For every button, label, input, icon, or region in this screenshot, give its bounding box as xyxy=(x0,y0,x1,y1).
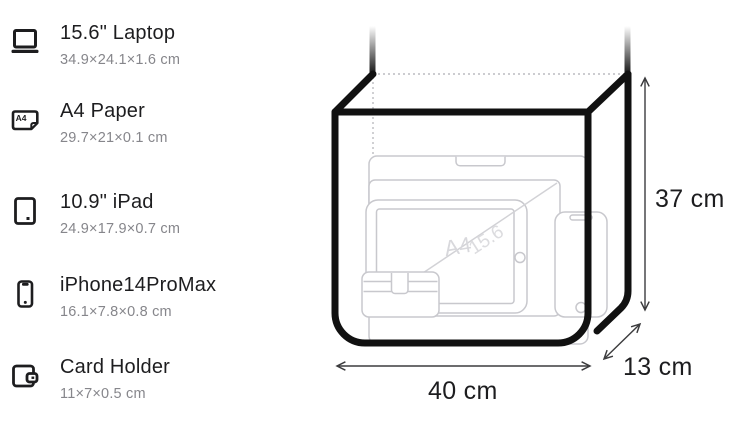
ghost-laptop xyxy=(369,156,588,344)
dimension-arrows xyxy=(337,78,645,366)
ipad-icon xyxy=(10,196,40,226)
ghost-iphone xyxy=(555,212,607,317)
ghost-contents: 15.6 A4 xyxy=(362,156,607,344)
ghost-perspective-line xyxy=(411,183,557,281)
ghost-ipad xyxy=(366,200,527,313)
item-title: Card Holder xyxy=(60,356,170,378)
item-dimensions: 29.7×21×0.1 cm xyxy=(60,130,168,146)
item-row-a4-paper: A4 A4 Paper 29.7×21×0.1 cm xyxy=(10,100,168,146)
item-dimensions: 16.1×7.8×0.8 cm xyxy=(60,304,216,320)
width-dimension-label: 40 cm xyxy=(428,377,498,406)
item-dimensions: 24.9×17.9×0.7 cm xyxy=(60,221,180,237)
ghost-a4-paper xyxy=(369,180,560,316)
item-dimensions: 11×7×0.5 cm xyxy=(60,386,170,402)
item-title: A4 Paper xyxy=(60,100,168,122)
height-dimension-label: 37 cm xyxy=(655,185,725,214)
depth-dimension-label: 13 cm xyxy=(623,353,693,382)
card-holder-icon xyxy=(10,361,40,391)
item-row-card-holder: Card Holder 11×7×0.5 cm xyxy=(10,356,170,402)
item-row-laptop: 15.6" Laptop 34.9×24.1×1.6 cm xyxy=(10,22,180,68)
hidden-edges-dotted xyxy=(373,74,627,156)
item-title: iPhone14ProMax xyxy=(60,274,216,296)
laptop-icon xyxy=(10,27,40,57)
item-row-iphone: iPhone14ProMax 16.1×7.8×0.8 cm xyxy=(10,274,216,320)
item-title: 10.9" iPad xyxy=(60,191,180,213)
item-dimensions: 34.9×24.1×1.6 cm xyxy=(60,52,180,68)
iphone-icon xyxy=(10,279,40,309)
item-title: 15.6" Laptop xyxy=(60,22,180,44)
ghost-a4-label: A4 xyxy=(442,232,473,261)
bag-outline xyxy=(335,74,628,343)
ghost-card-holder xyxy=(362,272,439,317)
bag-straps xyxy=(370,26,631,75)
ghost-laptop-label: 15.6 xyxy=(465,221,507,259)
a4-paper-icon: A4 xyxy=(10,105,40,135)
a4-icon-label: A4 xyxy=(16,113,27,123)
item-row-ipad: 10.9" iPad 24.9×17.9×0.7 cm xyxy=(10,191,180,237)
